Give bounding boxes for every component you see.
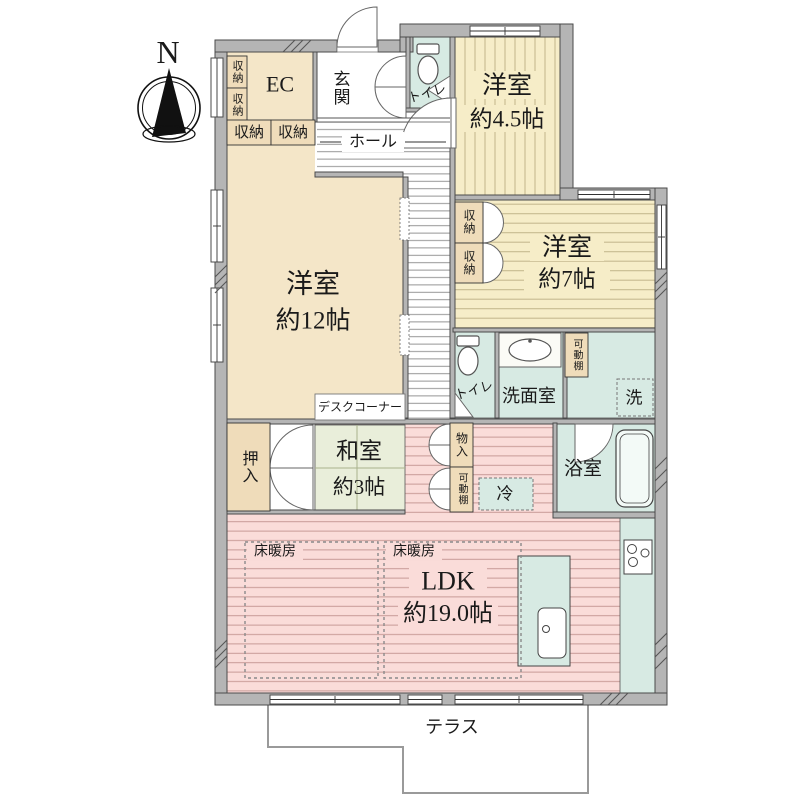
- fridge-space: 冷: [479, 478, 533, 510]
- room45-size: 約4.5帖: [470, 107, 545, 132]
- window-ldk-bottom-1: [270, 695, 400, 704]
- wall-left: [215, 40, 227, 705]
- floor-plan: テラス: [0, 0, 800, 800]
- closet-monoire: 物入: [450, 423, 473, 467]
- storage-label: 収納: [231, 60, 244, 84]
- terrace: テラス: [268, 700, 588, 793]
- hall-corridor: [403, 172, 450, 418]
- room12-size: 約12帖: [275, 307, 350, 335]
- wall-bath-left: [553, 423, 557, 512]
- closet-kadoudana-upper: 可動棚: [565, 333, 588, 377]
- window-room12-left-2: [211, 288, 223, 362]
- window-room7-right: [657, 205, 666, 269]
- fridge-label: 冷: [497, 485, 514, 504]
- bathroom-label: 浴室: [564, 458, 602, 480]
- storage-label: 収納: [234, 124, 264, 141]
- window-room45-top: [470, 26, 540, 36]
- kitchen-island: [518, 556, 570, 666]
- storage-label: 収納: [278, 124, 308, 141]
- room7-size: 約7帖: [538, 267, 596, 292]
- desk-corner: デスクコーナー: [315, 394, 405, 420]
- wall-toilet2-washroom: [495, 332, 499, 418]
- room12-sliding-door-2: [400, 315, 409, 355]
- wall-top-left: [215, 40, 337, 52]
- oshiire-label: 押入: [240, 450, 259, 484]
- stove-icon: [624, 540, 652, 574]
- room12-name: 洋室: [286, 269, 340, 299]
- ec-label: EC: [266, 72, 294, 97]
- toilet-icon: [417, 44, 439, 84]
- window-ldk-bottom-3: [455, 695, 583, 704]
- wall-corridor-right: [450, 37, 455, 418]
- wall-right-45: [560, 24, 573, 200]
- floor-heating-label: 床暖房: [254, 544, 296, 560]
- entrance-label: 玄関: [331, 70, 350, 106]
- north-compass: N: [138, 34, 200, 142]
- room45-name: 洋室: [482, 72, 532, 100]
- closet-ec-row: 収納 収納: [227, 120, 315, 145]
- toilet2-icon: [457, 336, 479, 375]
- kadoudana-label: 可動棚: [456, 473, 468, 506]
- storage-label: 収納: [462, 209, 476, 235]
- wall-ec-entrance: [313, 52, 317, 122]
- kadoudana-label: 可動棚: [571, 339, 583, 372]
- washroom-label: 洗面室: [502, 386, 556, 406]
- storage-label: 収納: [231, 93, 244, 117]
- wall-hall-room12: [315, 172, 403, 177]
- kitchen-sink-icon: [538, 608, 566, 658]
- closet-kadoudana-lower: 可動棚: [450, 467, 473, 512]
- window-room12-left-1: [211, 190, 223, 262]
- north-label: N: [156, 34, 179, 70]
- storage-label: 収納: [462, 250, 476, 276]
- floor-plan-svg: テラス: [0, 0, 800, 800]
- hall-label: ホール: [349, 134, 397, 151]
- closet-ec-vertical: 収納 収納: [227, 56, 247, 122]
- desk-corner-label: デスクコーナー: [318, 399, 402, 414]
- ldk-name: LDK: [421, 567, 475, 596]
- laundry-label: 洗: [626, 389, 643, 408]
- washitsu-size: 約3帖: [333, 475, 386, 499]
- window-ldk-bottom-2: [408, 695, 442, 704]
- wall-ldk-top: [227, 419, 655, 424]
- closet-oshiire: 押入: [227, 423, 270, 511]
- entrance-door: [337, 7, 378, 52]
- window-room7-top: [578, 190, 650, 199]
- closet-room7: 収納 収納: [455, 202, 483, 283]
- room12-sliding-door-1: [400, 198, 409, 240]
- bathtub-icon: [616, 430, 653, 507]
- washitsu-name: 和室: [336, 439, 382, 464]
- wall-bath-bottom: [553, 512, 655, 518]
- wall-45-7: [455, 195, 560, 200]
- room7-name: 洋室: [542, 234, 592, 262]
- window-ec-left: [211, 58, 223, 117]
- ldk-size: 約19.0帖: [403, 600, 493, 627]
- wall-7-sanitary: [453, 328, 655, 332]
- terrace-label: テラス: [425, 717, 479, 737]
- floor-heating-label: 床暖房: [393, 544, 435, 560]
- monoire-label: 物入: [455, 432, 469, 458]
- vanity-sink-icon: [499, 333, 561, 367]
